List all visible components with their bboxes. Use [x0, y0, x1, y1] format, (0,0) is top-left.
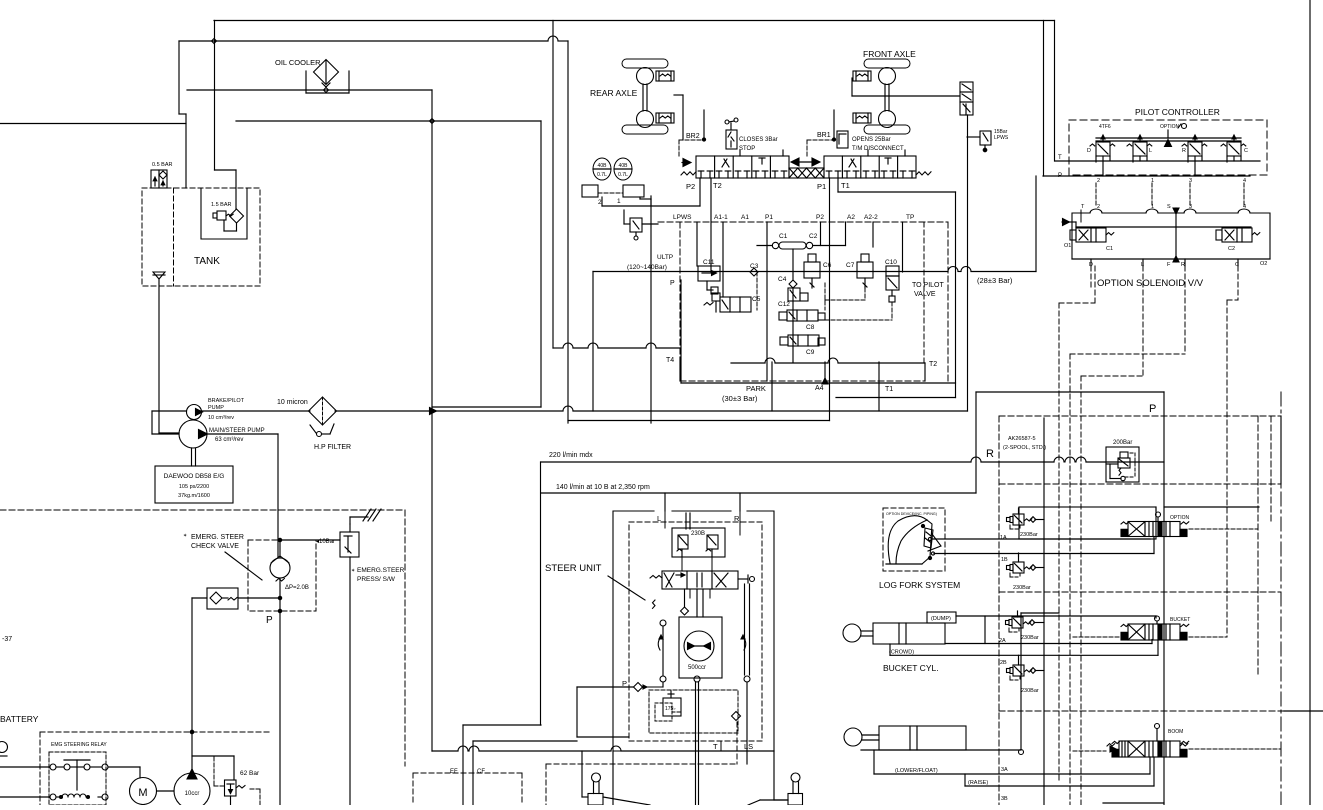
svg-text:A4: A4 [815, 385, 824, 392]
svg-text:OIL COOLER: OIL COOLER [275, 58, 321, 67]
svg-text:140 l/min at 10 B at 2,350 rpm: 140 l/min at 10 B at 2,350 rpm [556, 484, 650, 491]
svg-text:S: S [1167, 204, 1171, 210]
svg-text:230B: 230B [691, 531, 705, 537]
svg-text:PUMP: PUMP [208, 405, 224, 411]
svg-text:C6: C6 [823, 262, 832, 269]
svg-text:LOG FORK SYSTEM: LOG FORK SYSTEM [879, 580, 960, 590]
svg-text:500ccr: 500ccr [688, 665, 706, 671]
svg-text:(CROWD): (CROWD) [889, 650, 914, 656]
svg-text:EMERG. STEER: EMERG. STEER [191, 534, 244, 541]
svg-text:0.5 BAR: 0.5 BAR [152, 162, 173, 168]
svg-text:4: 4 [1243, 178, 1246, 184]
svg-text:230Bar: 230Bar [1021, 635, 1039, 641]
svg-text:1B: 1B [1001, 557, 1008, 563]
svg-text:P1: P1 [765, 214, 773, 221]
svg-text:230Bar: 230Bar [1013, 585, 1031, 591]
svg-text:A1: A1 [741, 214, 749, 221]
svg-text:4TF6: 4TF6 [1099, 124, 1111, 130]
svg-text:40B: 40B [598, 163, 608, 169]
svg-text:C10: C10 [885, 259, 897, 266]
svg-text:105 ps/2200: 105 ps/2200 [179, 484, 209, 490]
svg-text:3: 3 [1189, 178, 1192, 184]
svg-text:REAR AXLE: REAR AXLE [590, 88, 638, 98]
svg-text:D: D [1087, 148, 1091, 154]
svg-text:R: R [1182, 148, 1186, 154]
svg-text:0.7L: 0.7L [597, 172, 607, 178]
svg-text:O2: O2 [1260, 261, 1267, 267]
svg-text:PILOT CONTROLLER: PILOT CONTROLLER [1135, 107, 1220, 117]
svg-text:200Bar: 200Bar [1113, 440, 1132, 446]
svg-text:OPENS 25Bar: OPENS 25Bar [852, 137, 891, 143]
svg-text:OPTION: OPTION [1170, 515, 1190, 521]
svg-text:0.7L: 0.7L [618, 172, 628, 178]
svg-text:T1: T1 [841, 181, 850, 190]
svg-text:R: R [1181, 262, 1185, 268]
svg-text:C1: C1 [779, 233, 788, 240]
svg-text:2: 2 [598, 199, 602, 206]
svg-text:C8: C8 [806, 324, 815, 331]
svg-text:BUCKET CYL.: BUCKET CYL. [883, 663, 939, 673]
svg-text:230Bar: 230Bar [1021, 688, 1039, 694]
svg-text:(2-SPOOL, STD.): (2-SPOOL, STD.) [1003, 445, 1046, 451]
svg-text:A2: A2 [847, 214, 855, 221]
svg-text:A2-2: A2-2 [864, 214, 878, 221]
svg-text:1A: 1A [1000, 535, 1007, 541]
svg-text:ΔP=2.0B: ΔP=2.0B [285, 585, 309, 591]
svg-text:PARK: PARK [746, 384, 766, 393]
svg-text:O1: O1 [1064, 243, 1071, 249]
svg-text:P: P [266, 615, 273, 626]
svg-text:TP: TP [906, 214, 914, 221]
svg-text:(120~140Bar): (120~140Bar) [627, 264, 667, 271]
svg-text:62 Bar: 62 Bar [240, 770, 260, 777]
svg-text:✶: ✶ [183, 533, 187, 539]
svg-text:C2: C2 [1228, 246, 1235, 252]
svg-text:T2: T2 [929, 361, 937, 368]
svg-text:BR1: BR1 [817, 132, 831, 139]
svg-text:40B: 40B [619, 163, 629, 169]
svg-text:3A: 3A [1001, 767, 1008, 773]
svg-text:MAIN/STEER PUMP: MAIN/STEER PUMP [209, 428, 265, 434]
svg-text:P1: P1 [817, 182, 826, 191]
svg-text:BRAKE/PILOT: BRAKE/PILOT [208, 398, 245, 404]
svg-text:DAEWOO DB58 E/G: DAEWOO DB58 E/G [164, 473, 225, 480]
svg-text:LPWS: LPWS [994, 135, 1009, 141]
svg-text:3B: 3B [1001, 796, 1008, 802]
svg-text:2B: 2B [1000, 660, 1007, 666]
svg-text:EF: EF [450, 769, 458, 775]
svg-text:37kg.m/1600: 37kg.m/1600 [178, 493, 210, 499]
svg-text:TO PILOT: TO PILOT [912, 282, 944, 289]
svg-text:C7: C7 [846, 262, 855, 269]
svg-text:10 cm³/rev: 10 cm³/rev [208, 415, 234, 421]
svg-text:(30±3 Bar): (30±3 Bar) [722, 394, 758, 403]
svg-text:CHECK VALVE: CHECK VALVE [191, 543, 239, 550]
svg-text:P2: P2 [816, 214, 824, 221]
svg-text:VALVE: VALVE [914, 291, 936, 298]
svg-text:175♭: 175♭ [665, 706, 676, 712]
svg-text:1.5 BAR: 1.5 BAR [211, 202, 232, 208]
svg-text:C5: C5 [752, 296, 761, 303]
svg-text:EMG STEERING RELAY: EMG STEERING RELAY [51, 742, 107, 748]
svg-text:OPTION SOLENOID V/V: OPTION SOLENOID V/V [1097, 278, 1204, 289]
svg-text:C1: C1 [1106, 246, 1113, 252]
svg-text:STEER UNIT: STEER UNIT [545, 563, 602, 574]
svg-text:C4: C4 [778, 276, 787, 283]
svg-text:10ccr: 10ccr [185, 791, 200, 797]
svg-text:T: T [713, 742, 718, 751]
svg-text:M: M [138, 787, 147, 799]
svg-text:L: L [1149, 148, 1152, 154]
svg-text:C11: C11 [703, 259, 715, 266]
svg-text:T2: T2 [713, 181, 722, 190]
svg-text:LPWS: LPWS [673, 214, 692, 221]
svg-text:BOOM: BOOM [1168, 729, 1183, 735]
svg-text:P: P [670, 280, 675, 287]
svg-text:220 l/min mdx: 220 l/min mdx [549, 452, 593, 459]
svg-text:EMERG.STEER: EMERG.STEER [357, 567, 405, 574]
svg-text:ULTP: ULTP [657, 254, 673, 261]
svg-text:BATTERY: BATTERY [0, 714, 39, 724]
svg-text:C12: C12 [778, 301, 790, 308]
svg-text:(28±3 Bar): (28±3 Bar) [977, 276, 1013, 285]
svg-text:BUCKET: BUCKET [1170, 617, 1190, 623]
svg-text:T: T [1058, 155, 1062, 161]
svg-text:H.P FILTER: H.P FILTER [314, 444, 351, 451]
svg-text:230Bar: 230Bar [1020, 532, 1038, 538]
svg-text:-37: -37 [2, 636, 12, 643]
svg-text:C9: C9 [806, 349, 815, 356]
svg-text:2: 2 [1097, 178, 1100, 184]
svg-text:A1-1: A1-1 [714, 214, 728, 221]
svg-text:STOP: STOP [739, 146, 755, 152]
svg-text:BR2: BR2 [686, 133, 700, 140]
svg-text:CLOSES 3Bar: CLOSES 3Bar [739, 137, 778, 143]
svg-text:T4: T4 [666, 357, 674, 364]
svg-text:✶: ✶ [351, 568, 355, 574]
svg-text:PRESS/ S/W: PRESS/ S/W [357, 576, 396, 583]
svg-text:C: C [1244, 148, 1248, 154]
svg-text:P2: P2 [686, 182, 695, 191]
svg-text:OPTION: OPTION [1160, 124, 1180, 130]
svg-text:TANK: TANK [194, 256, 220, 267]
svg-text:(RAISE): (RAISE) [968, 780, 988, 786]
svg-text:FRONT AXLE: FRONT AXLE [863, 49, 916, 59]
svg-text:CF: CF [477, 769, 485, 775]
svg-text:C2: C2 [809, 233, 818, 240]
svg-text:10 micron: 10 micron [277, 399, 308, 406]
svg-text:1: 1 [1151, 178, 1154, 184]
svg-text:T1: T1 [885, 386, 893, 393]
svg-text:R: R [986, 448, 994, 460]
svg-text:(DUMP): (DUMP) [931, 616, 951, 622]
svg-text:T/M DISCONNECT: T/M DISCONNECT [852, 146, 904, 152]
svg-text:AK26587-5: AK26587-5 [1008, 436, 1036, 442]
svg-text:1: 1 [617, 198, 621, 205]
svg-text:P: P [1149, 403, 1156, 415]
svg-text:(LOWER/FLOAT): (LOWER/FLOAT) [895, 768, 938, 774]
svg-text:63 cm³/rev: 63 cm³/rev [215, 437, 243, 443]
svg-text:LS: LS [744, 742, 753, 751]
